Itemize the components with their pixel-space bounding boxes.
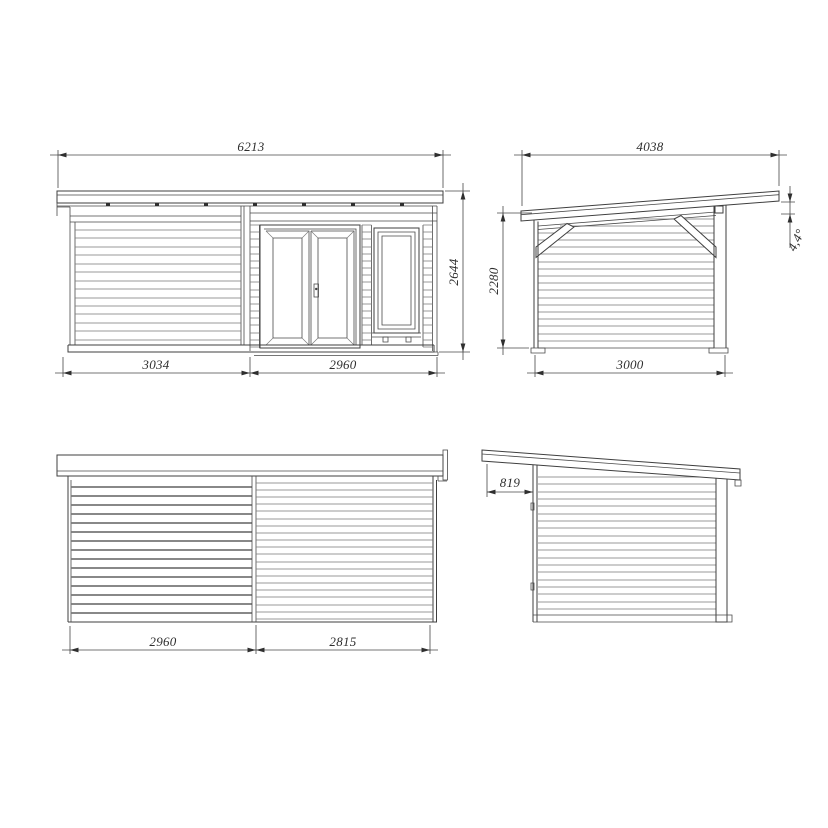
dim-text-porch-width: 3034 <box>141 357 169 372</box>
side-b-right-post <box>716 475 727 622</box>
dim-text-rear-left-width: 2960 <box>149 634 176 649</box>
dim-text-rear-right-width: 2815 <box>329 634 356 649</box>
technical-drawing: 6213 <box>0 0 828 828</box>
drawing-canvas: 6213 <box>0 0 828 828</box>
purlin-end <box>715 206 723 213</box>
dim-text-height: 2644 <box>446 258 461 285</box>
dim-text-wall-height: 2280 <box>486 267 501 294</box>
dim-text-overhang: 819 <box>500 475 521 490</box>
background <box>0 0 828 828</box>
dim-text-total-width: 6213 <box>237 139 264 154</box>
dim-text-cabin-width: 2960 <box>329 357 356 372</box>
dim-text-depth: 3000 <box>615 357 643 372</box>
dim-text-roof-length: 4038 <box>636 139 663 154</box>
